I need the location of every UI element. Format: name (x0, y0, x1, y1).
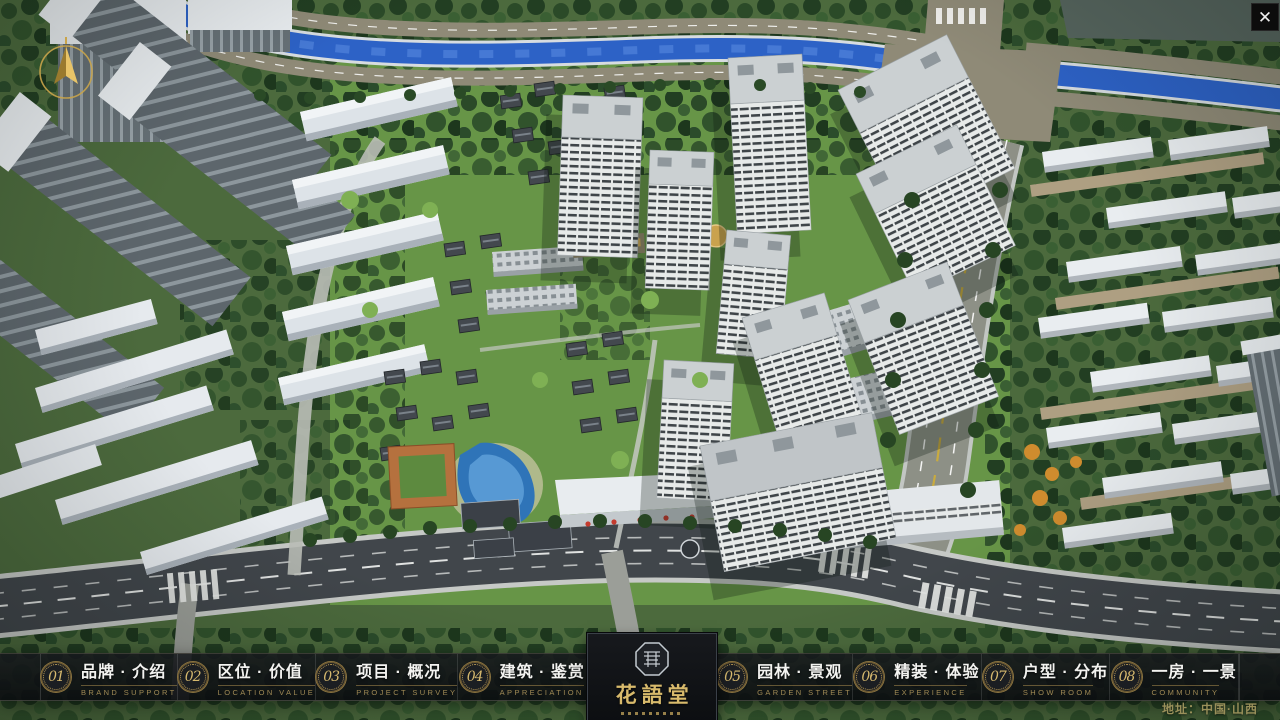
nav-label: 品牌 · 介绍 (81, 658, 166, 682)
nav-item-floorplan[interactable]: 07 户型 · 分布 SHOW ROOM (982, 654, 1111, 700)
nav-item-architecture[interactable]: 04 建筑 · 鉴赏 APPRECIATION (458, 654, 587, 700)
logo-tagline-decor (621, 712, 683, 715)
nav-item-location[interactable]: 02 区位 · 价值 LOCATION VALUE (178, 654, 317, 700)
nav-badge-06: 06 (854, 662, 884, 692)
nav-label: 项目 · 概况 (356, 658, 441, 682)
nav-sublabel: GARDEN STREET (757, 685, 852, 697)
nav-badge-04: 04 (460, 662, 490, 692)
nav-label: 区位 · 价值 (218, 658, 303, 682)
nav-item-brand[interactable]: 01 品牌 · 介绍 BRAND SUPPORT (41, 654, 178, 700)
nav-sublabel: PROJECT SURVEY (356, 685, 457, 697)
nav-item-interior[interactable]: 06 精装 · 体验 EXPERIENCE (853, 654, 982, 700)
nav-label: 园林 · 景观 (757, 658, 842, 682)
close-button[interactable]: ✕ (1251, 3, 1279, 31)
nav-badge-07: 07 (983, 662, 1013, 692)
nav-sublabel: EXPERIENCE (894, 685, 966, 697)
nav-sublabel: BRAND SUPPORT (81, 685, 177, 697)
project-logo[interactable]: 花語堂 (587, 633, 717, 720)
nav-badge-02: 02 (178, 662, 208, 692)
nav-badge-08: 08 (1112, 662, 1142, 692)
project-name: 花語堂 (611, 679, 694, 709)
seal-emblem-icon (635, 642, 669, 676)
presentation-window: ✕ 01 品牌 · 介绍 BRAND SUPPORT 02 区位 · 价值 LO… (0, 0, 1280, 720)
nav-sublabel: COMMUNITY (1152, 685, 1220, 697)
nav-badge-05: 05 (717, 662, 747, 692)
navbar-right-edge (1239, 654, 1280, 700)
nav-sublabel: SHOW ROOM (1023, 685, 1093, 697)
nav-badge-01: 01 (41, 662, 71, 692)
project-address: 地址：中国·山西 (1162, 700, 1258, 717)
aerial-masterplan-view[interactable] (0, 0, 1280, 720)
nav-item-garden[interactable]: 05 园林 · 景观 GARDEN STREET (717, 654, 853, 700)
nav-item-project[interactable]: 03 项目 · 概况 PROJECT SURVEY (316, 654, 458, 700)
nav-label: 精装 · 体验 (894, 658, 979, 682)
nav-sublabel: LOCATION VALUE (218, 685, 316, 697)
nav-label: 户型 · 分布 (1023, 658, 1108, 682)
nav-label: 一房 · 一景 (1152, 658, 1237, 682)
navbar-left-edge (0, 654, 41, 700)
nav-badge-03: 03 (316, 662, 346, 692)
nav-label: 建筑 · 鉴赏 (500, 658, 585, 682)
nav-item-community[interactable]: 08 一房 · 一景 COMMUNITY (1110, 654, 1239, 700)
bottom-navbar: 01 品牌 · 介绍 BRAND SUPPORT 02 区位 · 价值 LOCA… (0, 653, 1280, 701)
nav-sublabel: APPRECIATION (500, 685, 584, 697)
